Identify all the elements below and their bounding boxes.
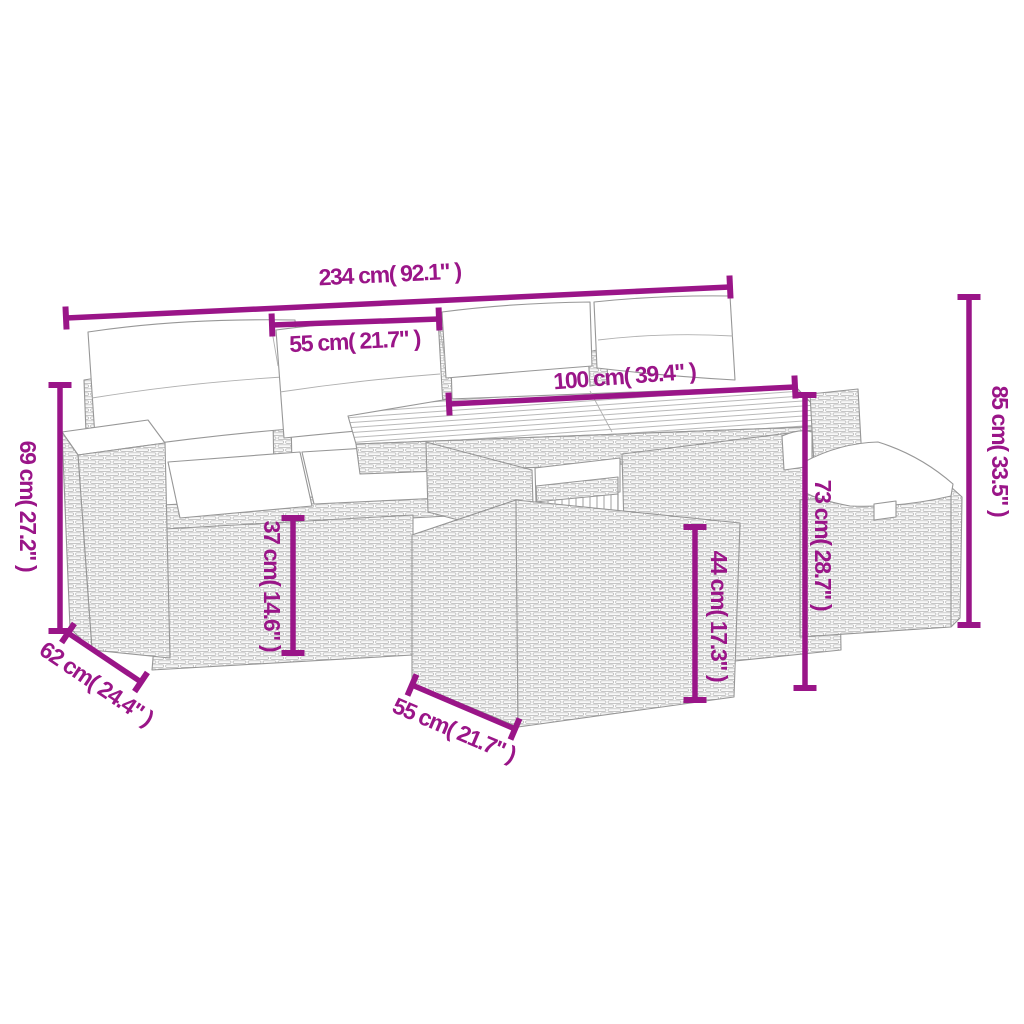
dimension-line (407, 674, 416, 695)
handle-notch (874, 501, 896, 520)
dimension-label-back-height: 69 cm( 27.2" ) (15, 441, 41, 572)
dimension-label-total-width: 234 cm( 92.1" ) (318, 258, 462, 291)
ottoman-side (951, 487, 962, 627)
dimension-back-height: 69 cm( 27.2" ) (15, 385, 72, 631)
dimension-label-total-height: 85 cm( 33.5" ) (987, 386, 1013, 517)
storage-stool (412, 500, 740, 727)
dimension-line (272, 314, 273, 337)
dimension-cushion-width: 55 cm( 21.7" ) (272, 308, 440, 358)
dimension-label-stool-height: 44 cm( 17.3" ) (706, 551, 732, 682)
dimension-label-table-height: 73 cm( 28.7" ) (810, 480, 836, 611)
dimension-line (439, 308, 440, 331)
seat-cushion (168, 452, 312, 518)
diagram-canvas: 234 cm( 92.1" )55 cm( 21.7" )100 cm( 39.… (0, 0, 1024, 1024)
product-dimension-diagram: 234 cm( 92.1" )55 cm( 21.7" )100 cm( 39.… (0, 0, 1024, 1024)
armrest-front (78, 443, 170, 658)
dimension-line (65, 307, 66, 330)
dimension-line (729, 276, 730, 299)
dimension-label-seat-height: 37 cm( 14.6" ) (259, 521, 285, 652)
dimension-line (448, 393, 449, 416)
dimension-total-height: 85 cm( 33.5" ) (958, 297, 1014, 625)
